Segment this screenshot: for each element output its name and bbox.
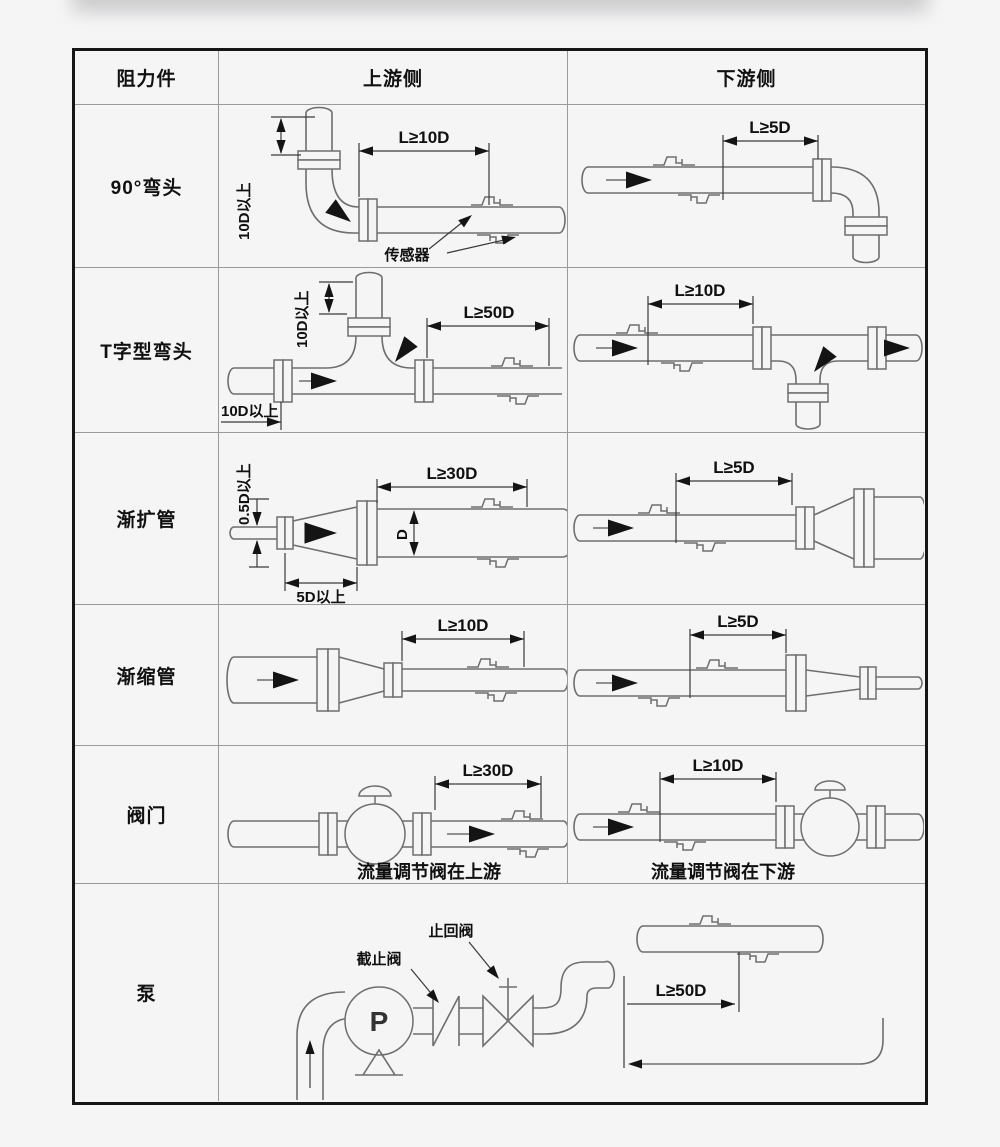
dimension-left: 10D以上 <box>221 402 281 430</box>
dim-l5d-label: L≥5D <box>717 612 758 631</box>
dimension-main: L≥30D <box>377 464 527 507</box>
diagram-expander-upstream: 0.5D以上 D 5D以上 L≥30D <box>219 433 568 605</box>
diagram-valve-upstream: L≥30D 流量调节阀在上游 <box>219 746 568 884</box>
row-label-text: 渐缩管 <box>116 662 176 689</box>
sensor-icon <box>661 363 703 371</box>
dim-d-label: D <box>394 529 411 540</box>
dim-l10d-label: L≥10D <box>399 128 450 147</box>
stop-valve-label: 截止阀 <box>356 950 401 968</box>
sensor-icon <box>507 849 549 857</box>
row-label-text: 泵 <box>136 979 156 1006</box>
diagram-pump: P 截止阀 <box>219 884 925 1101</box>
flow-arrow-icon <box>305 522 338 543</box>
diagram-elbow90-downstream: L≥5D <box>568 105 925 268</box>
meter-pipe <box>637 926 823 952</box>
valve-caption: 流量调节阀在上游 <box>357 861 501 882</box>
header-upstream: 上游侧 <box>219 51 568 105</box>
row-label-text: 阀门 <box>126 801 166 828</box>
stop-valve <box>433 996 459 1046</box>
pipe-return <box>628 1018 883 1069</box>
flow-arrow-icon <box>273 672 299 689</box>
sensor-icon <box>638 505 680 513</box>
diagram-valve-downstream: L≥10D 流量调节阀在下游 <box>568 746 925 884</box>
check-valve <box>483 978 533 1046</box>
row-label-valve: 阀门 <box>75 746 219 884</box>
flow-arrow-icon <box>608 520 634 537</box>
row-label-tee: T字型弯头 <box>75 268 219 433</box>
dim-l10d-label: L≥10D <box>675 281 726 300</box>
header-resistance-part: 阻力件 <box>75 51 219 105</box>
diagram-reducer-downstream: L≥5D <box>568 605 925 746</box>
flow-arrow-icon <box>612 340 638 357</box>
sensor-icon <box>471 499 513 507</box>
pipe-outlet <box>413 1008 483 1034</box>
sensor-icon <box>477 559 519 567</box>
sensor-icon <box>467 659 509 667</box>
pump-letter: P <box>370 1006 389 1037</box>
header-downstream: 下游侧 <box>568 51 925 105</box>
row-label-text: 渐扩管 <box>116 505 176 532</box>
check-valve-callout: 止回阀 <box>428 922 502 982</box>
row-label-elbow90: 90°弯头 <box>75 105 219 268</box>
sensor-icon <box>497 396 539 404</box>
sensor-icon <box>501 811 543 819</box>
diagram-reducer-upstream: L≥10D <box>219 605 568 746</box>
flow-arrow-icon <box>469 826 495 843</box>
dimension-main: L≥50D <box>624 952 739 1068</box>
dim-l50d-label: L≥50D <box>656 981 707 1000</box>
header-downstream-label: 下游侧 <box>716 64 776 91</box>
diagram-expander-downstream: L≥5D <box>568 433 925 605</box>
dim-l10d-label: L≥10D <box>438 616 489 635</box>
sensor-icon <box>664 842 706 850</box>
sensor-label: 传感器 <box>383 246 430 264</box>
pipe-riser <box>533 961 614 1034</box>
dim-10d-label: 10D以上 <box>236 182 253 240</box>
row-label-expander: 渐扩管 <box>75 433 219 605</box>
row-label-text: T字型弯头 <box>100 337 193 364</box>
dim-l30d-label: L≥30D <box>463 761 514 780</box>
dim-l5d-label: L≥5D <box>713 458 754 477</box>
dimension-vertical: 10D以上 <box>236 117 315 240</box>
row-label-pump: 泵 <box>75 884 219 1101</box>
dimension-d: D <box>394 510 419 556</box>
dimension-05d: 0.5D以上 <box>236 463 269 567</box>
diagram-tee-downstream: L≥10D <box>568 268 925 433</box>
sensor-icon <box>475 693 517 701</box>
sensor-icon <box>684 543 726 551</box>
dim-l30d-label: L≥30D <box>427 464 478 483</box>
sensor-icon <box>689 916 731 924</box>
dim-10d-top-label: 10D以上 <box>294 290 311 348</box>
dimension-main: L≥5D <box>723 118 818 200</box>
sensor-icon <box>737 954 779 962</box>
sensor-icon <box>618 804 660 812</box>
dim-l10d-label: L≥10D <box>693 756 744 775</box>
row-label-text: 90°弯头 <box>111 173 183 200</box>
header-upstream-label: 上游侧 <box>363 64 423 91</box>
sensor-icon <box>696 660 738 668</box>
flow-arrow-icon <box>612 675 638 692</box>
globe-valve <box>801 781 859 856</box>
dim-05d-label: 0.5D以上 <box>236 463 253 525</box>
dim-5d-label: 5D以上 <box>296 589 345 604</box>
dimension-main: L≥30D <box>435 761 541 818</box>
flow-arrow-icon <box>311 373 337 390</box>
check-valve-label: 止回阀 <box>428 922 473 940</box>
dimension-main: L≥10D <box>648 281 753 365</box>
dimension-main: L≥10D <box>660 756 776 842</box>
pipe-inlet <box>297 992 353 1100</box>
flow-arrow-icon <box>608 819 634 836</box>
valve-caption: 流量调节阀在下游 <box>651 861 795 882</box>
sensor-icon <box>653 157 695 165</box>
pipe <box>228 273 562 403</box>
pump: P <box>345 987 413 1075</box>
diagram-tee-upstream: 10D以上 L≥50D 10D以上 <box>219 268 568 433</box>
sensor-icon <box>678 195 720 203</box>
sensor-icon <box>471 197 513 205</box>
diagram-elbow90-upstream: 10D以上 L≥10D 传感器 <box>219 105 568 268</box>
dimension-top: 10D以上 <box>294 282 353 348</box>
pipe <box>574 327 922 429</box>
sensor-callout: 传感器 <box>383 211 517 264</box>
sensor-icon <box>616 325 658 333</box>
dimension-main: L≥50D <box>427 303 549 366</box>
row-label-reducer: 渐缩管 <box>75 605 219 746</box>
dimension-main: L≥5D <box>690 612 786 698</box>
dim-l5d-label: L≥5D <box>749 118 790 137</box>
globe-valve <box>345 786 405 864</box>
flow-arrow-icon <box>325 199 356 228</box>
sensor-icon <box>638 698 680 706</box>
dimension-main: L≥10D <box>402 616 524 667</box>
dimension-main: L≥10D <box>359 128 489 205</box>
flow-arrow-icon <box>884 340 910 357</box>
dimension-main: L≥5D <box>676 458 792 543</box>
sensor-icon <box>491 358 533 366</box>
dim-10d-left-label: 10D以上 <box>221 403 279 420</box>
installation-table: 阻力件 上游侧 下游侧 90°弯头 10D以上 L≥10D <box>72 48 928 1105</box>
flow-arrow-icon <box>626 172 652 189</box>
header-resistance-part-label: 阻力件 <box>116 64 176 91</box>
dim-l50d-label: L≥50D <box>464 303 515 322</box>
dimension-5d: 5D以上 <box>285 553 357 604</box>
